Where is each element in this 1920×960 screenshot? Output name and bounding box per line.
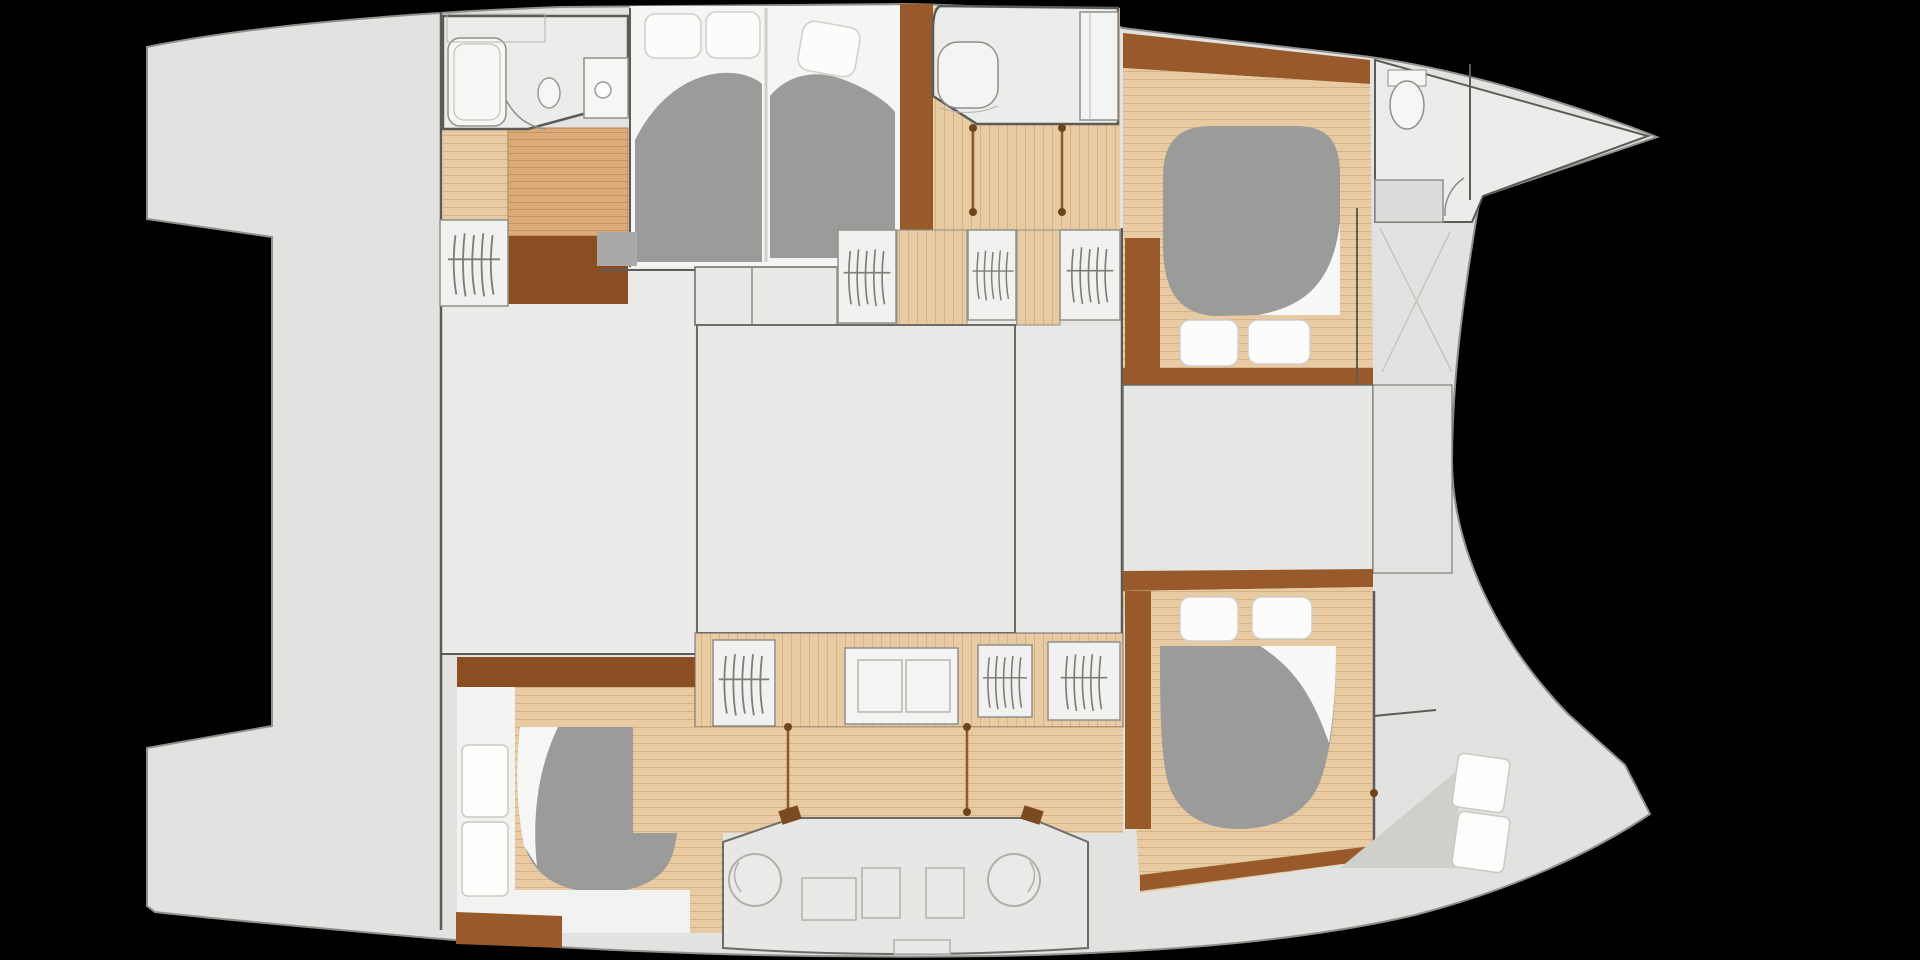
room-stbd-mid [1123,385,1373,573]
door-pivot-5b [963,808,971,816]
door-panel-port-aft-1 [462,745,508,817]
stern-brown-port [456,912,562,948]
door-panel-stbd-aft-1 [1451,753,1510,814]
door-pivot-1a [969,124,977,132]
pillow-port-fwd-1 [645,14,701,58]
door-pivot-4a [784,723,792,731]
band-wood-strip [1017,230,1060,325]
floorplan-page [0,0,1920,960]
cockpit-step [894,940,950,954]
floorplan-svg [0,0,1920,960]
toilet-stbd-fwd [1390,81,1424,129]
shower-port-fwd [448,38,506,126]
cockpit-seat-left [729,854,781,906]
pillow-stbd-aft-2 [1252,597,1312,639]
door-pivot-5a [963,723,971,731]
door-pivot-1b [969,208,977,216]
stairs-port-fwd [508,128,628,236]
door-panel-stbd-aft-2 [1451,811,1510,874]
cockpit-console-2 [862,868,900,918]
pillow-stbd-fwd-1 [1180,320,1238,366]
headboard-stbd-fwd [1123,368,1373,385]
sink-port-fwd [595,82,611,98]
wardrobe-mid-3 [1060,230,1120,320]
pillow-port-fwd-2 [706,12,760,58]
vanity-mid [1080,12,1118,120]
wall-brown-stbd-aft-left [1125,591,1151,829]
saloon-floor-starboard [1015,325,1122,633]
nightstand-port-fwd [597,232,637,266]
door-panel-port-aft-2 [462,822,508,896]
shower-mid [938,42,998,108]
toilet-port-fwd [538,78,560,108]
cockpit-console-3 [926,868,964,918]
wall-brown-mid-stbd [1125,238,1160,375]
saloon-table-block [697,325,1015,633]
cockpit-seat-right [988,854,1040,906]
door-pivot-3a [1370,789,1378,797]
band-wood-gap [897,230,967,325]
pillow-port-fwd-3 [796,19,862,78]
saloon-floor-port [441,267,695,655]
pillow-stbd-fwd-2 [1248,320,1310,364]
cockpit-console-1 [802,878,856,920]
door-pivot-2b [1058,208,1066,216]
bed-stbd-fwd [1163,126,1340,316]
pillow-stbd-aft-1 [1180,597,1238,641]
door-pivot-2a [1058,124,1066,132]
room-stbd-mid-east [1373,385,1452,573]
counter-stbd-fwd [1375,180,1443,222]
wardrobe-mid-1 [838,230,896,323]
